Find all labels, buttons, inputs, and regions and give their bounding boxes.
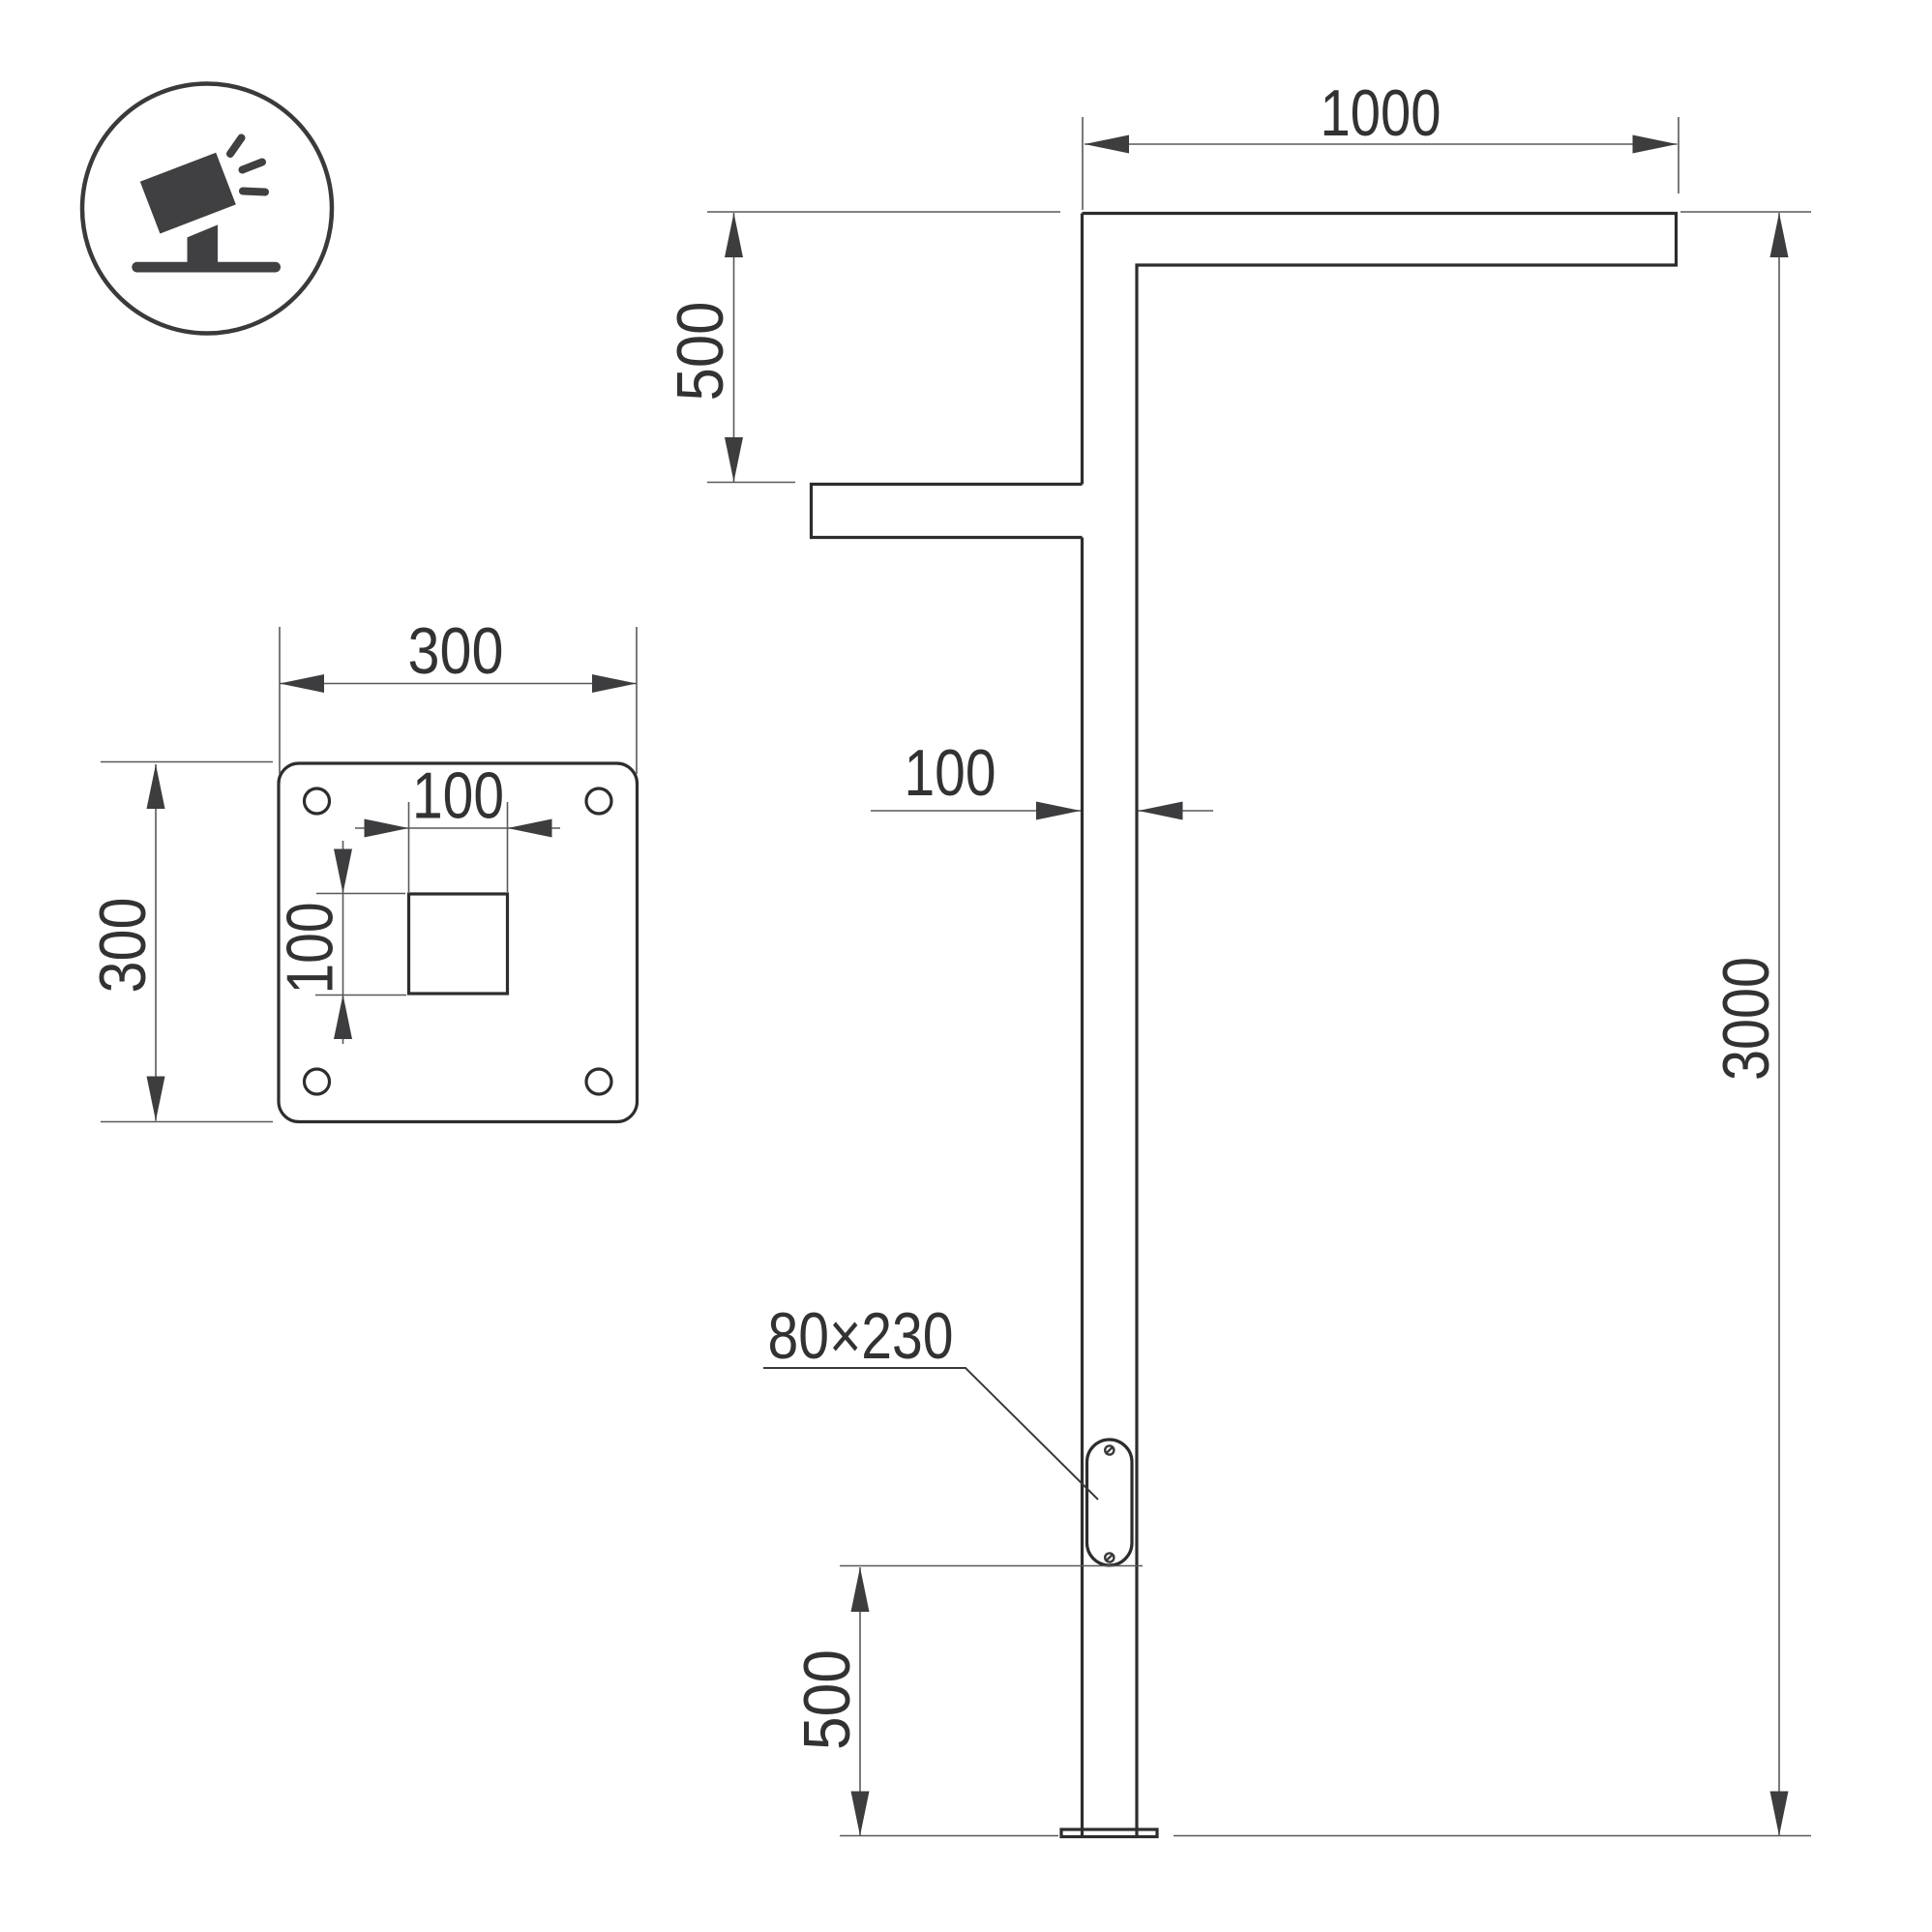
svg-text:500: 500 [664,302,737,401]
svg-text:300: 300 [408,614,504,688]
svg-text:100: 100 [274,903,347,995]
svg-text:1000: 1000 [1321,76,1442,150]
svg-text:80×230: 80×230 [768,1299,954,1373]
svg-text:500: 500 [790,1650,864,1750]
svg-text:300: 300 [86,898,160,994]
svg-text:100: 100 [905,736,996,810]
svg-text:3000: 3000 [1709,957,1783,1081]
svg-text:100: 100 [412,759,504,833]
